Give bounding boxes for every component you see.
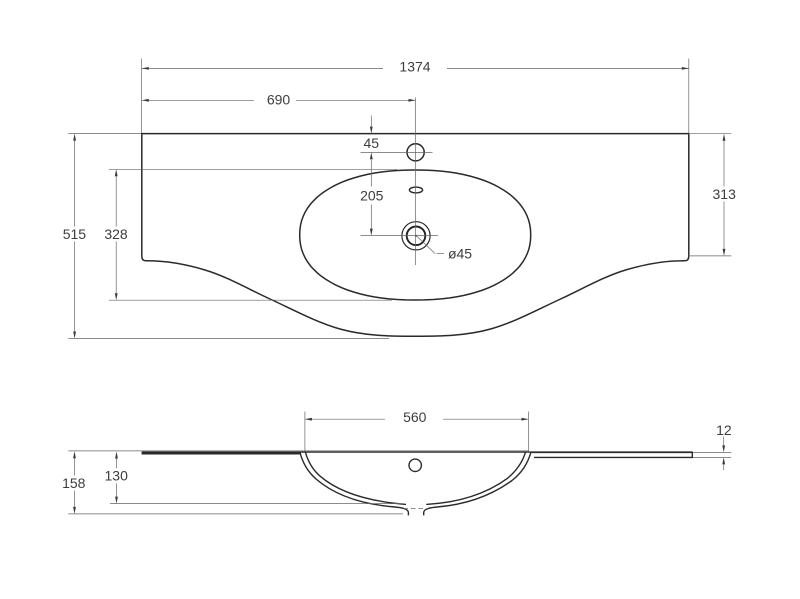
svg-text:560: 560 xyxy=(403,409,427,425)
svg-text:12: 12 xyxy=(716,422,732,438)
svg-text:158: 158 xyxy=(62,475,86,491)
svg-text:205: 205 xyxy=(360,187,384,203)
svg-text:690: 690 xyxy=(267,92,291,108)
svg-text:130: 130 xyxy=(105,468,129,484)
svg-text:ø45: ø45 xyxy=(448,245,472,261)
svg-text:1374: 1374 xyxy=(399,59,430,75)
svg-text:515: 515 xyxy=(63,226,87,242)
svg-text:45: 45 xyxy=(364,135,380,151)
svg-text:328: 328 xyxy=(104,226,128,242)
svg-text:313: 313 xyxy=(713,186,737,202)
